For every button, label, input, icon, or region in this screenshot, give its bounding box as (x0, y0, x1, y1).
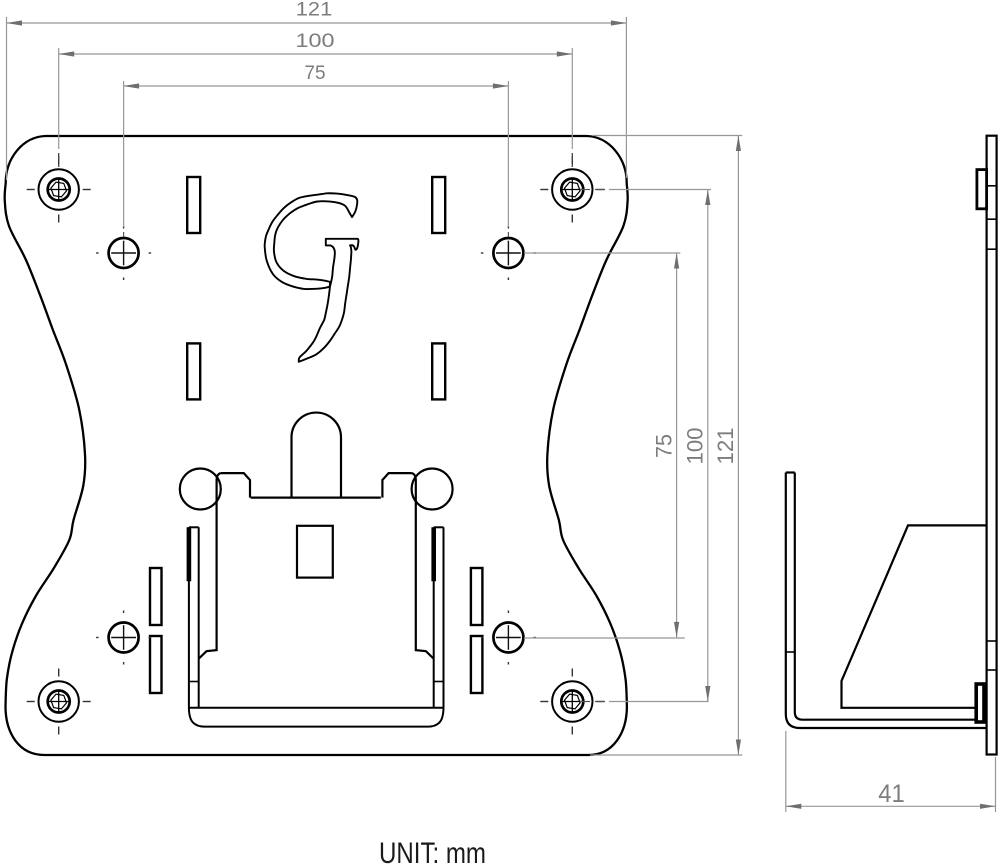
svg-text:UNIT: mm: UNIT: mm (379, 837, 486, 865)
svg-text:75: 75 (652, 434, 677, 458)
svg-text:41: 41 (878, 780, 905, 808)
svg-text:121: 121 (296, 0, 333, 21)
svg-text:100: 100 (683, 428, 708, 465)
svg-text:121: 121 (713, 428, 738, 465)
svg-text:100: 100 (296, 31, 335, 52)
svg-text:75: 75 (304, 63, 325, 84)
